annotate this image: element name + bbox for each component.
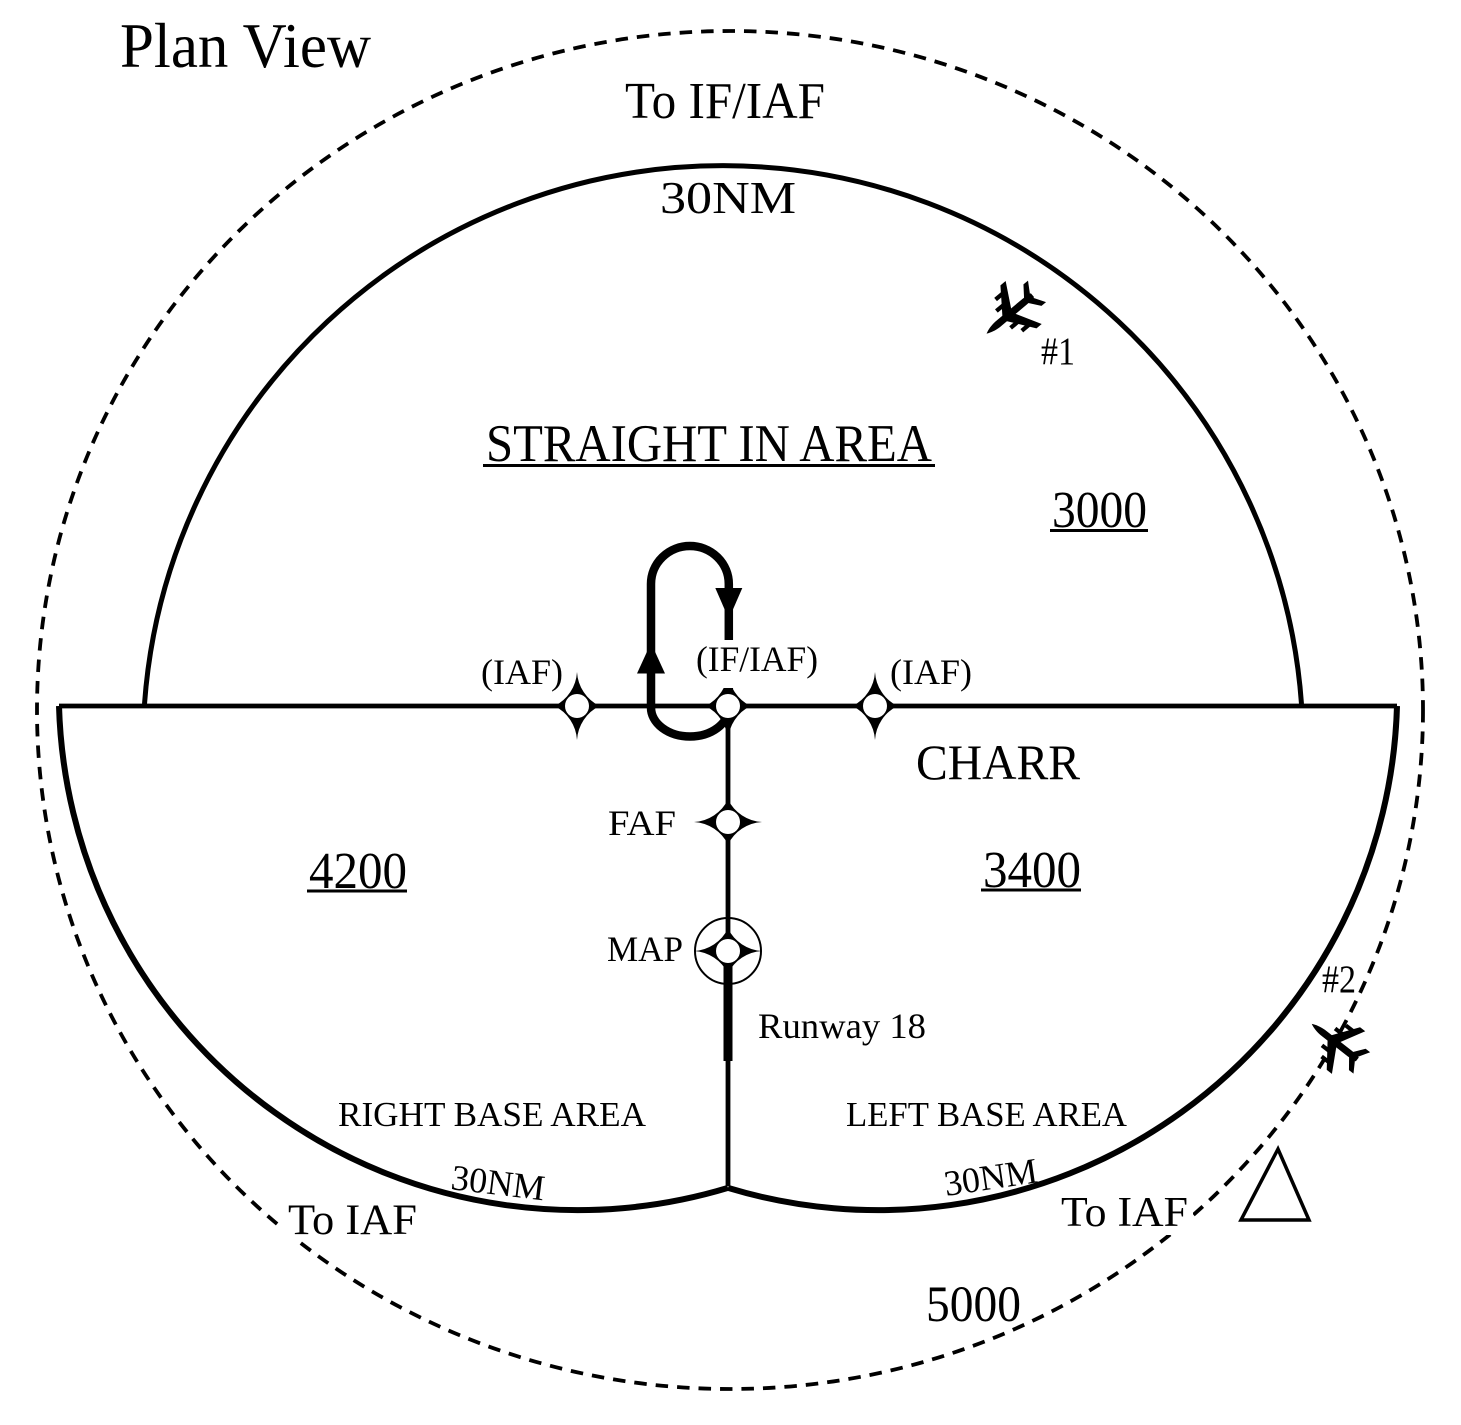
svg-text:FAF: FAF — [608, 803, 676, 843]
svg-text:To IAF: To IAF — [288, 1197, 417, 1244]
svg-text:LEFT BASE AREA: LEFT BASE AREA — [846, 1095, 1128, 1134]
svg-text:MAP: MAP — [607, 929, 683, 969]
svg-text:#1: #1 — [1041, 330, 1075, 373]
svg-text:Plan View: Plan View — [120, 11, 371, 81]
svg-text:Runway 18: Runway 18 — [758, 1006, 926, 1046]
svg-text:30NM: 30NM — [660, 172, 796, 223]
svg-text:(IAF): (IAF) — [481, 652, 563, 692]
svg-text:(IF/IAF): (IF/IAF) — [696, 639, 818, 679]
svg-text:(IAF): (IAF) — [890, 652, 972, 692]
svg-text:CHARR: CHARR — [916, 734, 1081, 790]
svg-text:#2: #2 — [1322, 958, 1356, 1001]
svg-text:To IF/IAF: To IF/IAF — [625, 73, 825, 130]
svg-text:RIGHT BASE AREA: RIGHT BASE AREA — [338, 1095, 647, 1134]
svg-text:To IAF: To IAF — [1061, 1190, 1188, 1236]
svg-text:5000: 5000 — [926, 1277, 1021, 1333]
